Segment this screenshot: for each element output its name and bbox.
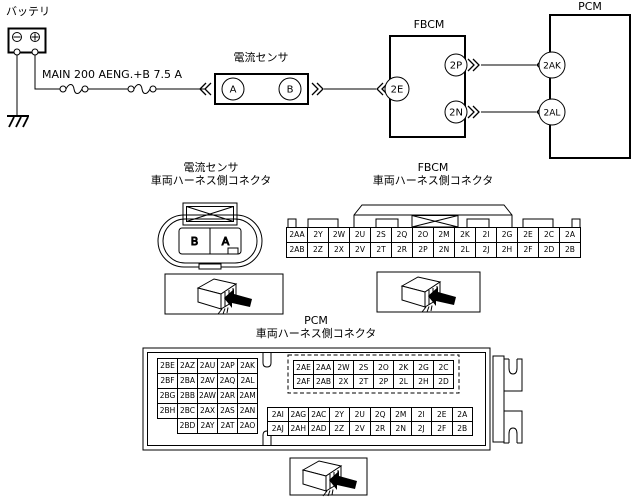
pin-cell: 2K — [394, 361, 414, 375]
pin-cell: 2BB — [178, 389, 198, 404]
pcm-label: PCM — [550, 1, 630, 13]
pin-cell: 2Q — [392, 228, 413, 243]
pin-cell: 2E — [432, 408, 453, 422]
sensor-pin-b: B — [191, 235, 199, 248]
pin-cell: 2AA — [287, 228, 308, 243]
sensor-connector-title: 電流センサ — [131, 162, 291, 174]
pin-cell: 2Z — [329, 422, 350, 436]
pin-cell: 2P — [374, 375, 394, 389]
pin-cell: 2AK — [238, 359, 258, 374]
pin-cell: 2M — [391, 408, 412, 422]
pin-cell: 2AZ — [178, 359, 198, 374]
ground-icon — [7, 55, 29, 127]
pin-cell: 2Y — [308, 228, 329, 243]
pin-cell: 2AS — [218, 404, 238, 419]
pin-cell: 2U — [350, 408, 371, 422]
terminal-2p: 2P — [450, 61, 462, 72]
pcm-connector-subtitle: 車両ハーネス側コネクタ — [236, 328, 396, 340]
pin-cell: 2B — [452, 422, 473, 436]
pin-cell: 2BH — [158, 404, 178, 419]
pin-cell: 2AU — [198, 359, 218, 374]
pin-cell: 2W — [334, 361, 354, 375]
pin-cell: 2AF — [294, 375, 314, 389]
pin-cell: 2I — [411, 408, 432, 422]
terminal-2ak: 2AK — [543, 62, 562, 72]
pcm-box — [539, 15, 630, 158]
pin-cell: 2C — [434, 361, 454, 375]
pin-cell: 2U — [350, 228, 371, 243]
pin-cell: 2N — [391, 422, 412, 436]
pin-cell: 2Y — [329, 408, 350, 422]
pin-cell: 2AP — [218, 359, 238, 374]
pin-cell: 2G — [414, 361, 434, 375]
pin-cell: 2J — [411, 422, 432, 436]
pin-cell: 2Z — [308, 243, 329, 258]
pcm-connector-bottom-right-pin-grid: 2AI2AG2AC2Y2U2Q2M2I2E2A2AJ2AH2AD2Z2V2R2N… — [267, 407, 473, 436]
sensor-connector-subtitle: 車両ハーネス側コネクタ — [131, 175, 291, 187]
pin-cell: 2F — [518, 243, 539, 258]
pin-cell: 2AJ — [268, 422, 289, 436]
pin-cell: 2H — [414, 375, 434, 389]
pin-cell: 2A — [560, 228, 581, 243]
fbcm-connector-subtitle: 車両ハーネス側コネクタ — [353, 175, 513, 187]
pin-cell: 2AB — [314, 375, 334, 389]
pin-cell: 2S — [354, 361, 374, 375]
fuse-engb-label: ENG.+B 7.5 A — [105, 69, 183, 81]
pin-cell: 2T — [371, 243, 392, 258]
pcm-connector-top-right-pin-grid: 2AE2AA2W2S2O2K2G2C2AF2AB2X2T2P2L2H2D — [293, 360, 454, 389]
connector-view-icon — [402, 277, 456, 312]
terminal-b: B — [287, 85, 294, 96]
pin-cell: 2AH — [288, 422, 309, 436]
connector-view-icon — [198, 279, 252, 314]
pin-cell: 2AA — [314, 361, 334, 375]
pin-cell: 2L — [394, 375, 414, 389]
pin-cell: 2AX — [198, 404, 218, 419]
pin-cell: 2AW — [198, 389, 218, 404]
pin-cell: 2L — [455, 243, 476, 258]
pin-cell: 2AN — [238, 404, 258, 419]
pin-cell: 2AG — [288, 408, 309, 422]
pin-cell: 2K — [455, 228, 476, 243]
pin-cell: 2BA — [178, 374, 198, 389]
current-sensor-label: 電流センサ — [221, 52, 301, 64]
pin-cell: 2J — [476, 243, 497, 258]
pin-cell: 2O — [413, 228, 434, 243]
pin-cell: 2P — [413, 243, 434, 258]
pin-cell: 2S — [371, 228, 392, 243]
pin-cell: 2AC — [309, 408, 330, 422]
pin-cell: 2AY — [198, 419, 218, 434]
pin-cell: 2BE — [158, 359, 178, 374]
pin-cell: 2C — [539, 228, 560, 243]
pin-cell: 2H — [497, 243, 518, 258]
pin-cell: 2W — [329, 228, 350, 243]
pin-cell: 2G — [497, 228, 518, 243]
pin-cell: 2V — [350, 243, 371, 258]
pin-cell: 2AD — [309, 422, 330, 436]
battery-icon — [9, 29, 46, 56]
pin-cell: 2D — [539, 243, 560, 258]
terminal-2al: 2AL — [544, 109, 561, 119]
pin-cell: 2R — [392, 243, 413, 258]
fbcm-connector-pin-grid: 2AA2Y2W2U2S2Q2O2M2K2I2G2E2C2A2AB2Z2X2V2T… — [286, 227, 581, 258]
pin-cell: 2AE — [294, 361, 314, 375]
fuse-main-icon — [60, 85, 88, 94]
pin-cell: 2AO — [238, 419, 258, 434]
pin-cell: 2BG — [158, 389, 178, 404]
pin-cell: 2N — [434, 243, 455, 258]
pcm-connector-title: PCM — [236, 315, 396, 327]
pin-cell: 2F — [432, 422, 453, 436]
pin-cell: 2D — [434, 375, 454, 389]
pin-cell: 2O — [374, 361, 394, 375]
pin-cell — [158, 419, 178, 434]
pin-cell: 2BD — [178, 419, 198, 434]
pin-cell: 2R — [370, 422, 391, 436]
pin-cell: 2M — [434, 228, 455, 243]
fbcm-connector-housing — [288, 205, 580, 227]
pin-cell: 2AM — [238, 389, 258, 404]
terminal-a: A — [230, 85, 237, 96]
pin-cell: 2I — [476, 228, 497, 243]
pin-cell: 2AT — [218, 419, 238, 434]
pin-cell: 2BF — [158, 374, 178, 389]
pin-cell: 2AL — [238, 374, 258, 389]
pin-cell: 2AV — [198, 374, 218, 389]
pin-cell: 2T — [354, 375, 374, 389]
terminal-2e: 2E — [391, 85, 404, 96]
sensor-connector-drawing: B A — [158, 203, 262, 269]
pin-cell: 2AI — [268, 408, 289, 422]
pin-cell: 2E — [518, 228, 539, 243]
pin-cell: 2B — [560, 243, 581, 258]
terminal-2n: 2N — [449, 108, 463, 119]
pin-cell: 2Q — [370, 408, 391, 422]
pin-cell: 2V — [350, 422, 371, 436]
pin-cell: 2AR — [218, 389, 238, 404]
connector-view-icon — [303, 461, 357, 496]
fuse-engb-icon — [128, 85, 156, 94]
pin-cell: 2X — [329, 243, 350, 258]
pin-cell: 2A — [452, 408, 473, 422]
sensor-pin-a: A — [222, 235, 230, 248]
wiring-diagram: A B 2E 2P 2N 2AK 2AL B A — [0, 0, 634, 499]
battery-label: バッテリ — [6, 6, 50, 18]
fbcm-connector-title: FBCM — [353, 162, 513, 174]
pin-cell: 2AQ — [218, 374, 238, 389]
pin-cell: 2X — [334, 375, 354, 389]
fuse-main-label: MAIN 200 A — [36, 69, 112, 81]
pcm-connector-left-pin-grid: 2BE2AZ2AU2AP2AK2BF2BA2AV2AQ2AL2BG2BB2AW2… — [157, 358, 258, 434]
pin-cell: 2BC — [178, 404, 198, 419]
pin-cell: 2AB — [287, 243, 308, 258]
fbcm-label: FBCM — [389, 19, 469, 31]
